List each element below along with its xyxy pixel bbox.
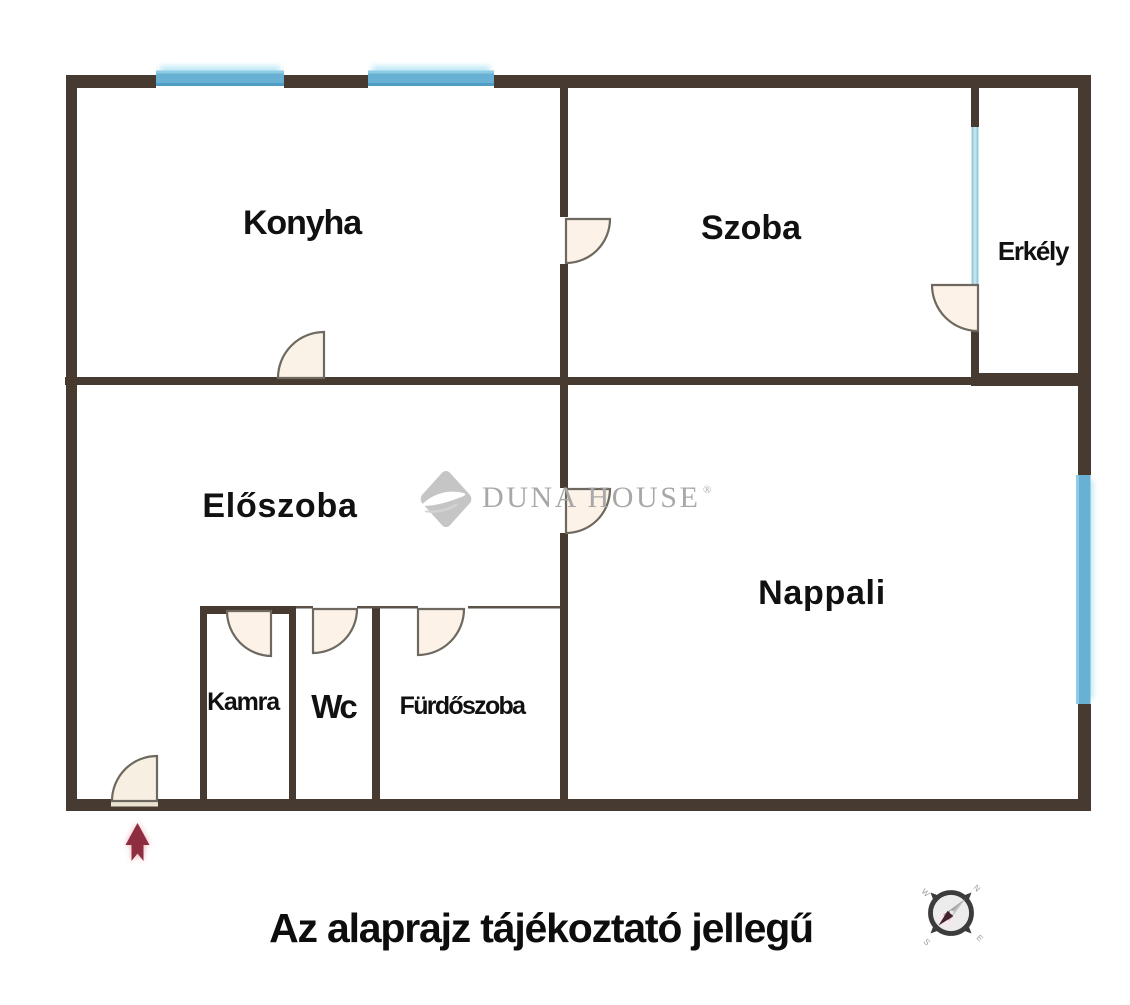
svg-text:Konyha: Konyha	[243, 204, 363, 242]
svg-text:Előszoba: Előszoba	[202, 487, 358, 525]
svg-text:DUNA HOUSE: DUNA HOUSE	[482, 481, 701, 514]
svg-text:Kamra: Kamra	[207, 688, 281, 716]
svg-text:Erkély: Erkély	[998, 236, 1070, 266]
svg-text:Fürdőszoba: Fürdőszoba	[400, 692, 527, 720]
svg-text:Wc: Wc	[311, 688, 357, 725]
svg-text:Szoba: Szoba	[701, 209, 802, 247]
svg-text:Nappali: Nappali	[758, 574, 886, 612]
svg-text:Az alaprajz tájékoztató jelleg: Az alaprajz tájékoztató jellegű	[269, 905, 813, 951]
svg-text:®: ®	[703, 484, 711, 496]
